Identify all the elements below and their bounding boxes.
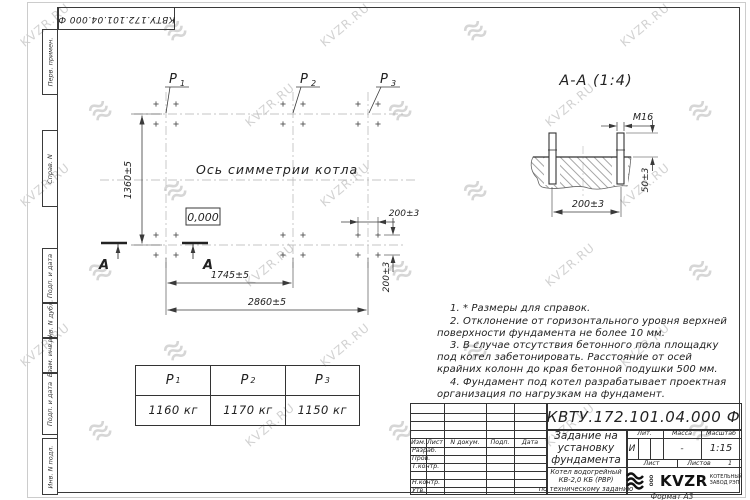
drawing-sheet: KVZR.RUKVZR.RUKVZR.RUKVZR.RUKVZR.RUKVZR.… [0,0,750,500]
frame-column-inv-dubl: Инв. N дубл. [42,302,58,339]
note-3: 3. В случае отсутствия бетонного пола пл… [437,340,733,375]
section-title: А-А (1:4) [558,73,632,89]
load-table-header-p3: P3 [285,366,359,396]
tb-row-prov: Пров. [412,455,443,463]
load-p1-sub: 1 [180,79,185,88]
dim-2860-label: 2860±5 [248,297,286,308]
dim-arrow [350,220,358,225]
frame-column-label: Взам. инв. N [46,334,54,376]
load-p1-label: P [169,72,177,87]
anchor-bolt-marks [153,101,380,257]
tb-row-empty [412,471,443,479]
note-1: 1. * Размеры для справок. [437,303,733,315]
tb-company: ООО KVZR КОТЕЛЬНЫЙ ЗАВОД РЭП [626,467,741,494]
dim-pitch-x-label: 200±3 [389,209,420,219]
frame-column-podp-data-1: Подп. и дата [42,248,58,304]
thread-callout-label: М16 [633,112,653,123]
tb-title: Задание на установку фундамента [546,429,626,467]
load-p3-sub: 3 [391,79,396,88]
company-tagline: КОТЕЛЬНЫЙ ЗАВОД РЭП [710,475,743,486]
dim-200-section-label: 200±3 [572,199,604,210]
symmetry-axis-label: Ось симметрии котла [196,162,358,177]
frame-column-label: Справ. N [46,154,54,184]
dim-arrow [650,125,655,133]
tb-header-podp: Подп. [486,438,514,447]
tb-scale-value: 1:15 [701,438,741,459]
section-cut-marks [101,243,208,259]
tb-row-nkontr: Н.контр. [412,479,443,487]
load-table-value-p1: 1160 кг [136,396,210,426]
plan-view: 1360±5 1745±5 2860±5 200±3 [98,72,420,315]
company-name: KVZR [660,472,708,490]
title-block: Изм. Лист N докум. Подп. Дата Разраб. Пр… [410,403,742,495]
tb-row-razrab: Разраб. [412,447,443,455]
dim-arrow [391,227,396,235]
note-4: 4. Фундамент под котел разрабатывает про… [437,377,733,401]
tb-sheets-label: Листов [677,459,721,467]
dim-arrow [378,220,386,225]
frame-column-label: Инв. N подл. [46,445,54,488]
load-p2-sub: 2 [311,79,316,88]
tb-header-izm: Изм. [411,438,426,447]
rotated-docnumber-text: КВТУ.172.101.04.000 Ф [58,14,175,24]
notes-block: 1. * Размеры для справок. 2. Отклонение … [437,303,733,401]
tb-lit-value: И [626,438,638,459]
rotated-docnumber-stamp: КВТУ.172.101.04.000 Ф [58,8,175,30]
tb-header-list: Лист [426,438,444,447]
dim-arrow [609,124,617,128]
tb-header-data: Дата [514,438,546,447]
load-table-value-p3: 1150 кг [285,396,359,426]
dim-1360 [131,114,162,245]
tb-subtitle: Котел водогрейный КВ-2,0 КБ (РВР) по тех… [546,467,626,494]
frame-column-perv-primen: Перв. примен. [42,29,58,95]
frame-column-inv-podl: Инв. N подл. [42,438,58,495]
tb-header-ndokum: N докум. [444,438,486,447]
frame-column-podp-data-2: Подп. и дата [42,372,58,435]
dim-pitch-y-label: 200±3 [382,262,392,293]
load-p2-label: P [300,72,308,87]
dim-1745-label: 1745±5 [211,270,249,281]
kvzr-logo-icon [625,472,645,490]
tb-lit-label: Лит. [626,429,663,438]
frame-column-label: Подп. и дата [46,254,54,298]
anchor-bolt-left [549,133,556,184]
tb-row-utv: Утв. [412,487,443,495]
frame-column-label: Подп. и дата [46,381,54,425]
dim-1360-label: 1360±5 [123,161,134,199]
load-p3-label: P [380,72,388,87]
note-2: 2. Отклонение от горизонтального уровня … [437,316,733,340]
anchor-bolt-right [617,133,624,184]
tb-sheets-value: 1 [721,459,739,467]
company-ooo: ООО [650,475,655,486]
tb-mass-value: - [663,438,701,459]
load-leaders [165,87,400,113]
tb-scale-label: Масштаб [701,429,741,438]
frame-column-sprav-n: Справ. N [42,130,58,207]
tb-mass-label: Масса [663,429,701,438]
load-table-header-p2: P2 [210,366,284,396]
section-letter-a2: А [202,258,213,273]
format-label: Формат А3 [612,492,732,500]
frame-column-label: Перв. примен. [46,38,54,87]
dim-arrow [650,157,655,165]
tb-row-tkontr: Т.контр. [412,463,443,471]
load-table-value-p2: 1170 кг [210,396,284,426]
tb-sheet-label: Лист [626,459,677,467]
tb-doc-number: КВТУ.172.101.04.000 Ф [546,404,741,429]
dim-arrow [624,124,632,128]
level-mark-value: 0,000 [187,211,219,224]
load-table-header-p1: P1 [136,366,210,396]
plan-axes [100,92,415,268]
frame-column-vzam-inv: Взам. инв. N [42,337,58,374]
section-letter-a1: А [98,258,109,273]
dim-50-label: 50±3 [641,167,651,192]
load-table: P1 P2 P3 1160 кг 1170 кг 1150 кг [135,365,360,426]
section-view: А-А (1:4) М16 [531,73,658,217]
